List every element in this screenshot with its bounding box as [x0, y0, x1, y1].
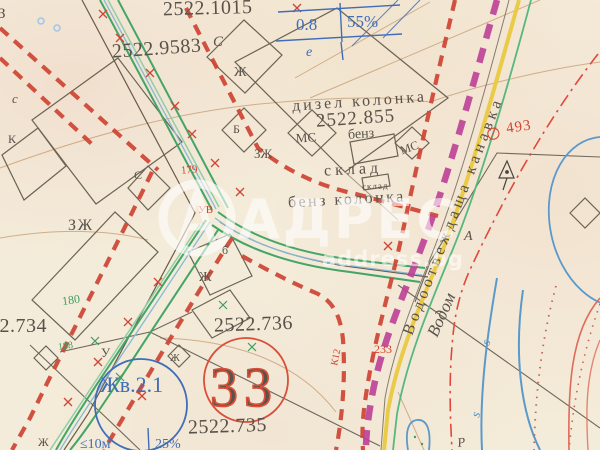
zone-coverage-value: 25%: [155, 437, 181, 450]
pipe-diameter-symbol: ∅: [484, 123, 503, 145]
zone-circle-label: Жв.2.1: [100, 372, 163, 397]
block-number: 33: [210, 357, 278, 419]
map-letter: Ж: [170, 352, 180, 364]
stream-letter: s: [478, 337, 494, 347]
measure-label: 180: [61, 292, 81, 308]
watermark-site: address.bg: [322, 247, 464, 271]
zone-density-value: 0.8: [296, 15, 317, 34]
red-boundary-lines: [450, 54, 600, 450]
map-canvas[interactable]: 2522.1015 2522.9583 2522.855 2522.736 25…: [0, 0, 600, 450]
watermark: АДРЕС address.bg: [163, 184, 464, 271]
parcel-number-label: 2522.1015: [163, 0, 253, 20]
parcel-number-label: 2522.736: [214, 312, 294, 337]
poi-label-ms: МС: [295, 129, 316, 145]
pond-outline: [407, 420, 430, 450]
measure-label: 233: [374, 342, 392, 356]
map-letter: Ж: [199, 270, 212, 285]
map-letter: ЗЖ: [254, 146, 272, 161]
map-letter: З: [0, 6, 6, 22]
pipe-diameter-value: 493: [505, 117, 532, 136]
map-letter: У: [101, 345, 111, 360]
map-letter: Ж: [38, 435, 49, 449]
map-letter: Ж: [234, 65, 247, 80]
map-letter: ЗЖ: [68, 217, 94, 234]
watermark-brand: АДРЕС: [238, 188, 459, 251]
map-letter: К: [8, 132, 17, 146]
measure-label: 179: [181, 163, 199, 176]
map-letter: С: [213, 34, 224, 50]
zone-height-value: ≤10м: [80, 437, 111, 450]
stream-lines: [407, 125, 600, 450]
map-letter: Б: [233, 122, 240, 136]
land-boundary-dashdot: [450, 54, 598, 450]
parcel-number-label: 2522.734: [0, 315, 47, 337]
building: [570, 198, 600, 228]
map-letter: с: [12, 91, 18, 106]
zone-intensity-value: 55%: [347, 12, 378, 31]
poi-label-warehouse: склад: [324, 160, 383, 180]
zone-note: е: [306, 45, 312, 60]
measure-label: К12: [329, 348, 343, 367]
map-linework: 2522.1015 2522.9583 2522.855 2522.736 25…: [0, 0, 600, 450]
screenshot-stage: 2522.1015 2522.9583 2522.855 2522.736 25…: [0, 0, 600, 450]
river-r-mark: Р: [455, 434, 466, 450]
measure-label: 188: [57, 340, 73, 353]
poi-label-benz: бенз: [348, 126, 376, 143]
map-letter: А: [463, 229, 473, 244]
map-letter: С: [134, 168, 142, 182]
blue-point-marks: [38, 18, 60, 31]
